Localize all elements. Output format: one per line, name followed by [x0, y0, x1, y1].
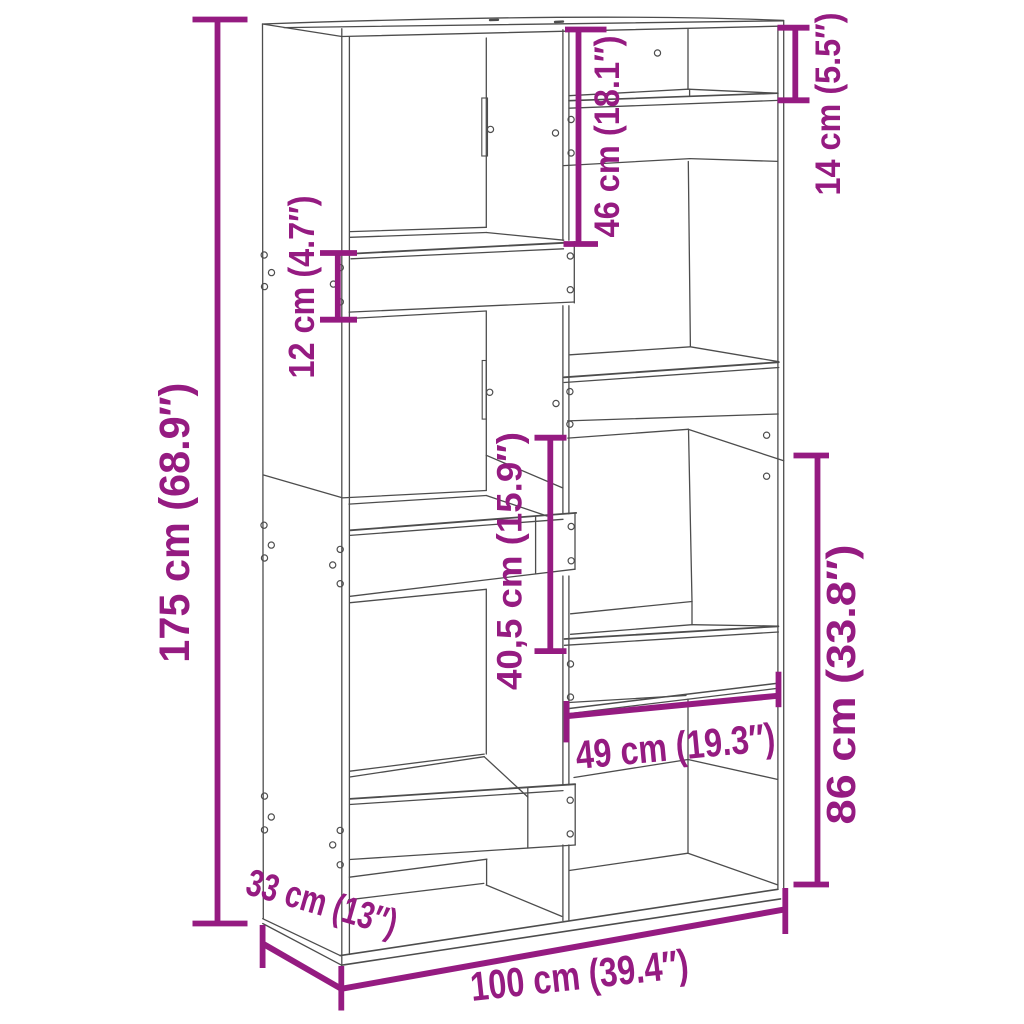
- svg-text:175 cm (68.9″): 175 cm (68.9″): [151, 383, 199, 663]
- svg-text:14 cm (5.5″): 14 cm (5.5″): [809, 13, 848, 196]
- svg-text:46 cm (18.1″): 46 cm (18.1″): [588, 36, 627, 238]
- svg-text:12 cm (4.7″): 12 cm (4.7″): [281, 196, 322, 379]
- svg-text:40,5 cm (15.9″): 40,5 cm (15.9″): [491, 432, 530, 690]
- svg-text:86 cm (33.8″): 86 cm (33.8″): [818, 545, 864, 825]
